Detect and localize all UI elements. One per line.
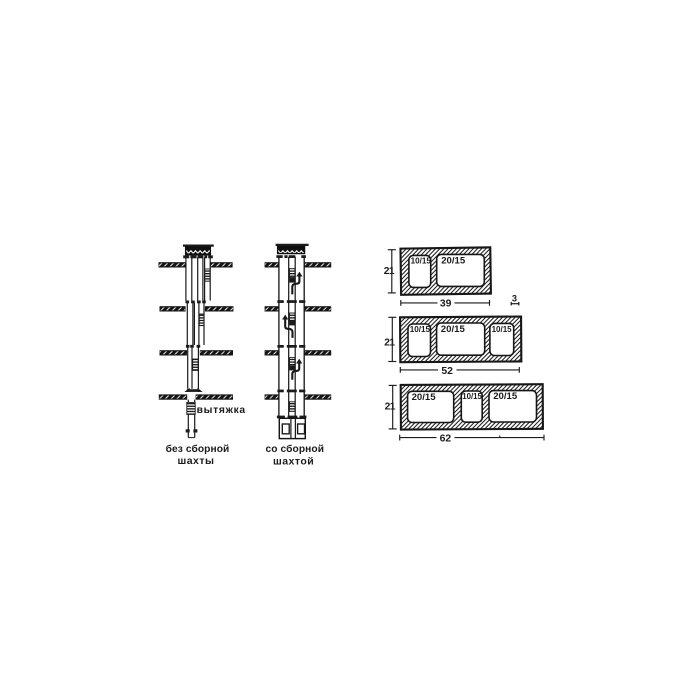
svg-text:21: 21 — [384, 337, 395, 348]
svg-text:10/15: 10/15 — [411, 256, 432, 265]
svg-text:21: 21 — [384, 266, 395, 277]
svg-text:3: 3 — [512, 294, 517, 304]
svg-text:вытяжка: вытяжка — [197, 405, 246, 416]
svg-text:20/15: 20/15 — [493, 391, 518, 402]
svg-text:20/15: 20/15 — [441, 324, 466, 335]
svg-text:10/15: 10/15 — [462, 392, 482, 401]
svg-text:52: 52 — [441, 366, 453, 377]
svg-text:со сборной: со сборной — [265, 443, 324, 455]
svg-text:шахтой: шахтой — [273, 455, 314, 467]
svg-text:шахты: шахты — [177, 455, 214, 467]
svg-text:20/15: 20/15 — [441, 255, 466, 266]
svg-text:20/15: 20/15 — [412, 392, 437, 403]
svg-text:62: 62 — [440, 433, 452, 444]
svg-text:21: 21 — [385, 402, 396, 413]
svg-text:10/15: 10/15 — [410, 325, 431, 334]
svg-text:10/15: 10/15 — [492, 325, 513, 334]
svg-text:без сборной: без сборной — [166, 443, 230, 455]
svg-text:39: 39 — [440, 299, 452, 310]
